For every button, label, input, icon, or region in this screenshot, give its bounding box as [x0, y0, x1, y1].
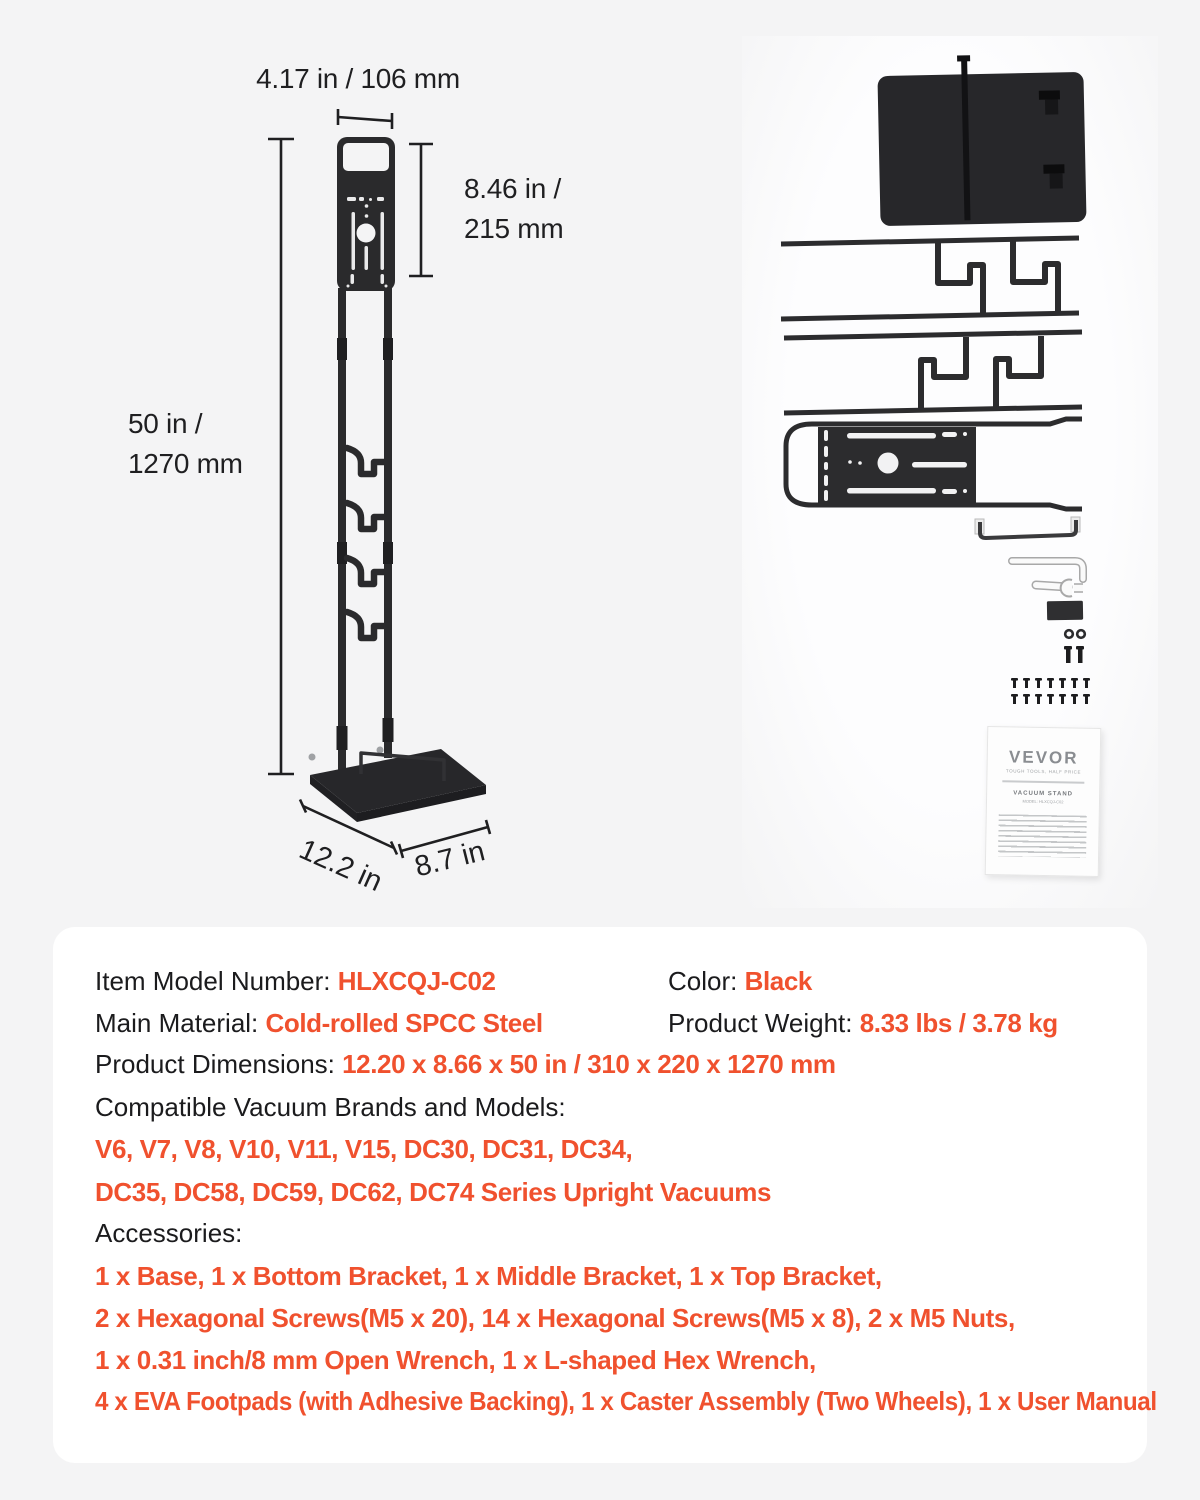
color-value: Black	[745, 966, 812, 996]
spec-accessories-heading: Accessories:	[95, 1217, 242, 1249]
dim-base-depth-label: 12.2 in	[294, 833, 387, 898]
accessories-value-line4: 4 x EVA Footpads (with Adhesive Backing)…	[95, 1386, 1157, 1416]
spec-compatible-line1: V6, V7, V8, V10, V11, V15, DC30, DC31, D…	[95, 1133, 632, 1165]
spec-accessories-line2: 2 x Hexagonal Screws(M5 x 20), 14 x Hexa…	[95, 1302, 1015, 1334]
dim-base-width-label: 8.7 in	[412, 835, 489, 883]
open-wrench-part	[1036, 579, 1083, 596]
material-value: Cold-rolled SPCC Steel	[266, 1008, 543, 1038]
stand-hooks	[347, 448, 386, 638]
spec-card: Item Model Number: HLXCQJ-C02 Color: Bla…	[53, 927, 1147, 1463]
spec-accessories-line3: 1 x 0.31 inch/8 mm Open Wrench, 1 x L-sh…	[95, 1344, 816, 1376]
top-bracket-part	[786, 419, 1082, 509]
dim-height-label-line1: 50 in /	[128, 408, 203, 439]
bottom-bracket-part	[781, 238, 1079, 319]
spec-weight: Product Weight: 8.33 lbs / 3.78 kg	[668, 1007, 1058, 1039]
accessories-value-line2: 2 x Hexagonal Screws(M5 x 20), 14 x Hexa…	[95, 1303, 1015, 1333]
spec-compatible-line2: DC35, DC58, DC59, DC62, DC74 Series Upri…	[95, 1176, 771, 1208]
weight-label: Product Weight:	[668, 1008, 860, 1038]
wire-bracket-part	[975, 517, 1080, 538]
manual-brand-logo: VEVOR	[988, 747, 1100, 769]
hex-wrench-part	[1012, 561, 1083, 579]
base-plate-part	[877, 53, 1086, 226]
dimensions-label: Product Dimensions:	[95, 1049, 342, 1079]
spec-dimensions: Product Dimensions: 12.20 x 8.66 x 50 in…	[95, 1048, 836, 1080]
accessories-value-line3: 1 x 0.31 inch/8 mm Open Wrench, 1 x L-sh…	[95, 1345, 816, 1375]
spec-accessories-line4: 4 x EVA Footpads (with Adhesive Backing)…	[95, 1385, 1157, 1417]
user-manual: VEVOR TOUGH TOOLS, HALF PRICE VACUUM STA…	[985, 726, 1102, 877]
m5-nuts-part	[1065, 630, 1085, 638]
manual-paragraph-lines	[998, 814, 1086, 858]
middle-bracket-part	[784, 332, 1082, 413]
item-model-label: Item Model Number:	[95, 966, 338, 996]
compatible-label: Compatible Vacuum Brands and Models:	[95, 1092, 566, 1122]
spec-accessories-line1: 1 x Base, 1 x Bottom Bracket, 1 x Middle…	[95, 1260, 882, 1292]
compatible-models-line1: V6, V7, V8, V10, V11, V15, DC30, DC31, D…	[95, 1134, 632, 1164]
color-label: Color:	[668, 966, 745, 996]
manual-model: MODEL: HLXCQJ-C02	[987, 798, 1099, 805]
item-model-value: HLXCQJ-C02	[338, 966, 496, 996]
weight-value: 8.33 lbs / 3.78 kg	[860, 1008, 1058, 1038]
accessories-value-line1: 1 x Base, 1 x Bottom Bracket, 1 x Middle…	[95, 1261, 882, 1291]
dim-bracket-label-line1: 8.46 in /	[464, 173, 561, 204]
compatible-models-line2: DC35, DC58, DC59, DC62, DC74 Series Upri…	[95, 1177, 771, 1207]
eva-footpad-part	[1047, 601, 1083, 621]
dim-bracket-label-line2: 215 mm	[464, 213, 563, 244]
stand-drawing	[309, 137, 487, 822]
dim-width-label: 4.17 in / 106 mm	[256, 63, 460, 94]
manual-tagline: TOUGH TOOLS, HALF PRICE	[987, 768, 1099, 775]
manual-rule	[1002, 780, 1085, 783]
spec-color: Color: Black	[668, 965, 812, 997]
dimensions-value: 12.20 x 8.66 x 50 in / 310 x 220 x 1270 …	[342, 1049, 835, 1079]
material-label: Main Material:	[95, 1008, 266, 1038]
manual-title: VACUUM STAND	[987, 790, 1099, 798]
spec-item-model: Item Model Number: HLXCQJ-C02	[95, 965, 496, 997]
accessories-label: Accessories:	[95, 1218, 242, 1248]
long-screws-part	[1064, 646, 1084, 663]
page-background: 4.17 in / 106 mm 8.46 in / 215 mm 50 in …	[0, 0, 1200, 1500]
spec-material: Main Material: Cold-rolled SPCC Steel	[95, 1007, 543, 1039]
spec-compatible-heading: Compatible Vacuum Brands and Models:	[95, 1091, 566, 1123]
dim-height-label-line2: 1270 mm	[128, 448, 243, 479]
short-screws-part	[1011, 678, 1090, 704]
